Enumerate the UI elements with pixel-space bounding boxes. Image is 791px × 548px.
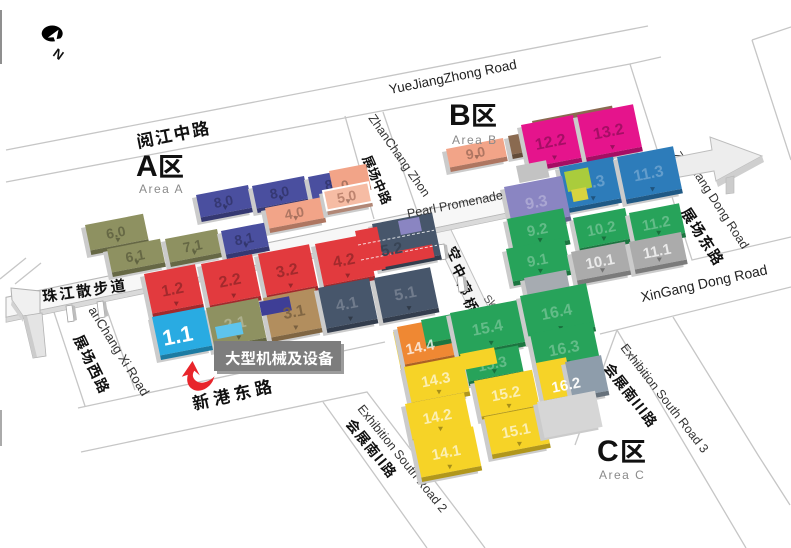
svg-text:A: A	[136, 150, 158, 183]
svg-text:Area B: Area B	[452, 133, 498, 147]
svg-text:Area C: Area C	[599, 468, 645, 482]
svg-text:Area A: Area A	[139, 182, 184, 196]
svg-text:B: B	[449, 99, 471, 132]
svg-text:C: C	[597, 435, 619, 468]
